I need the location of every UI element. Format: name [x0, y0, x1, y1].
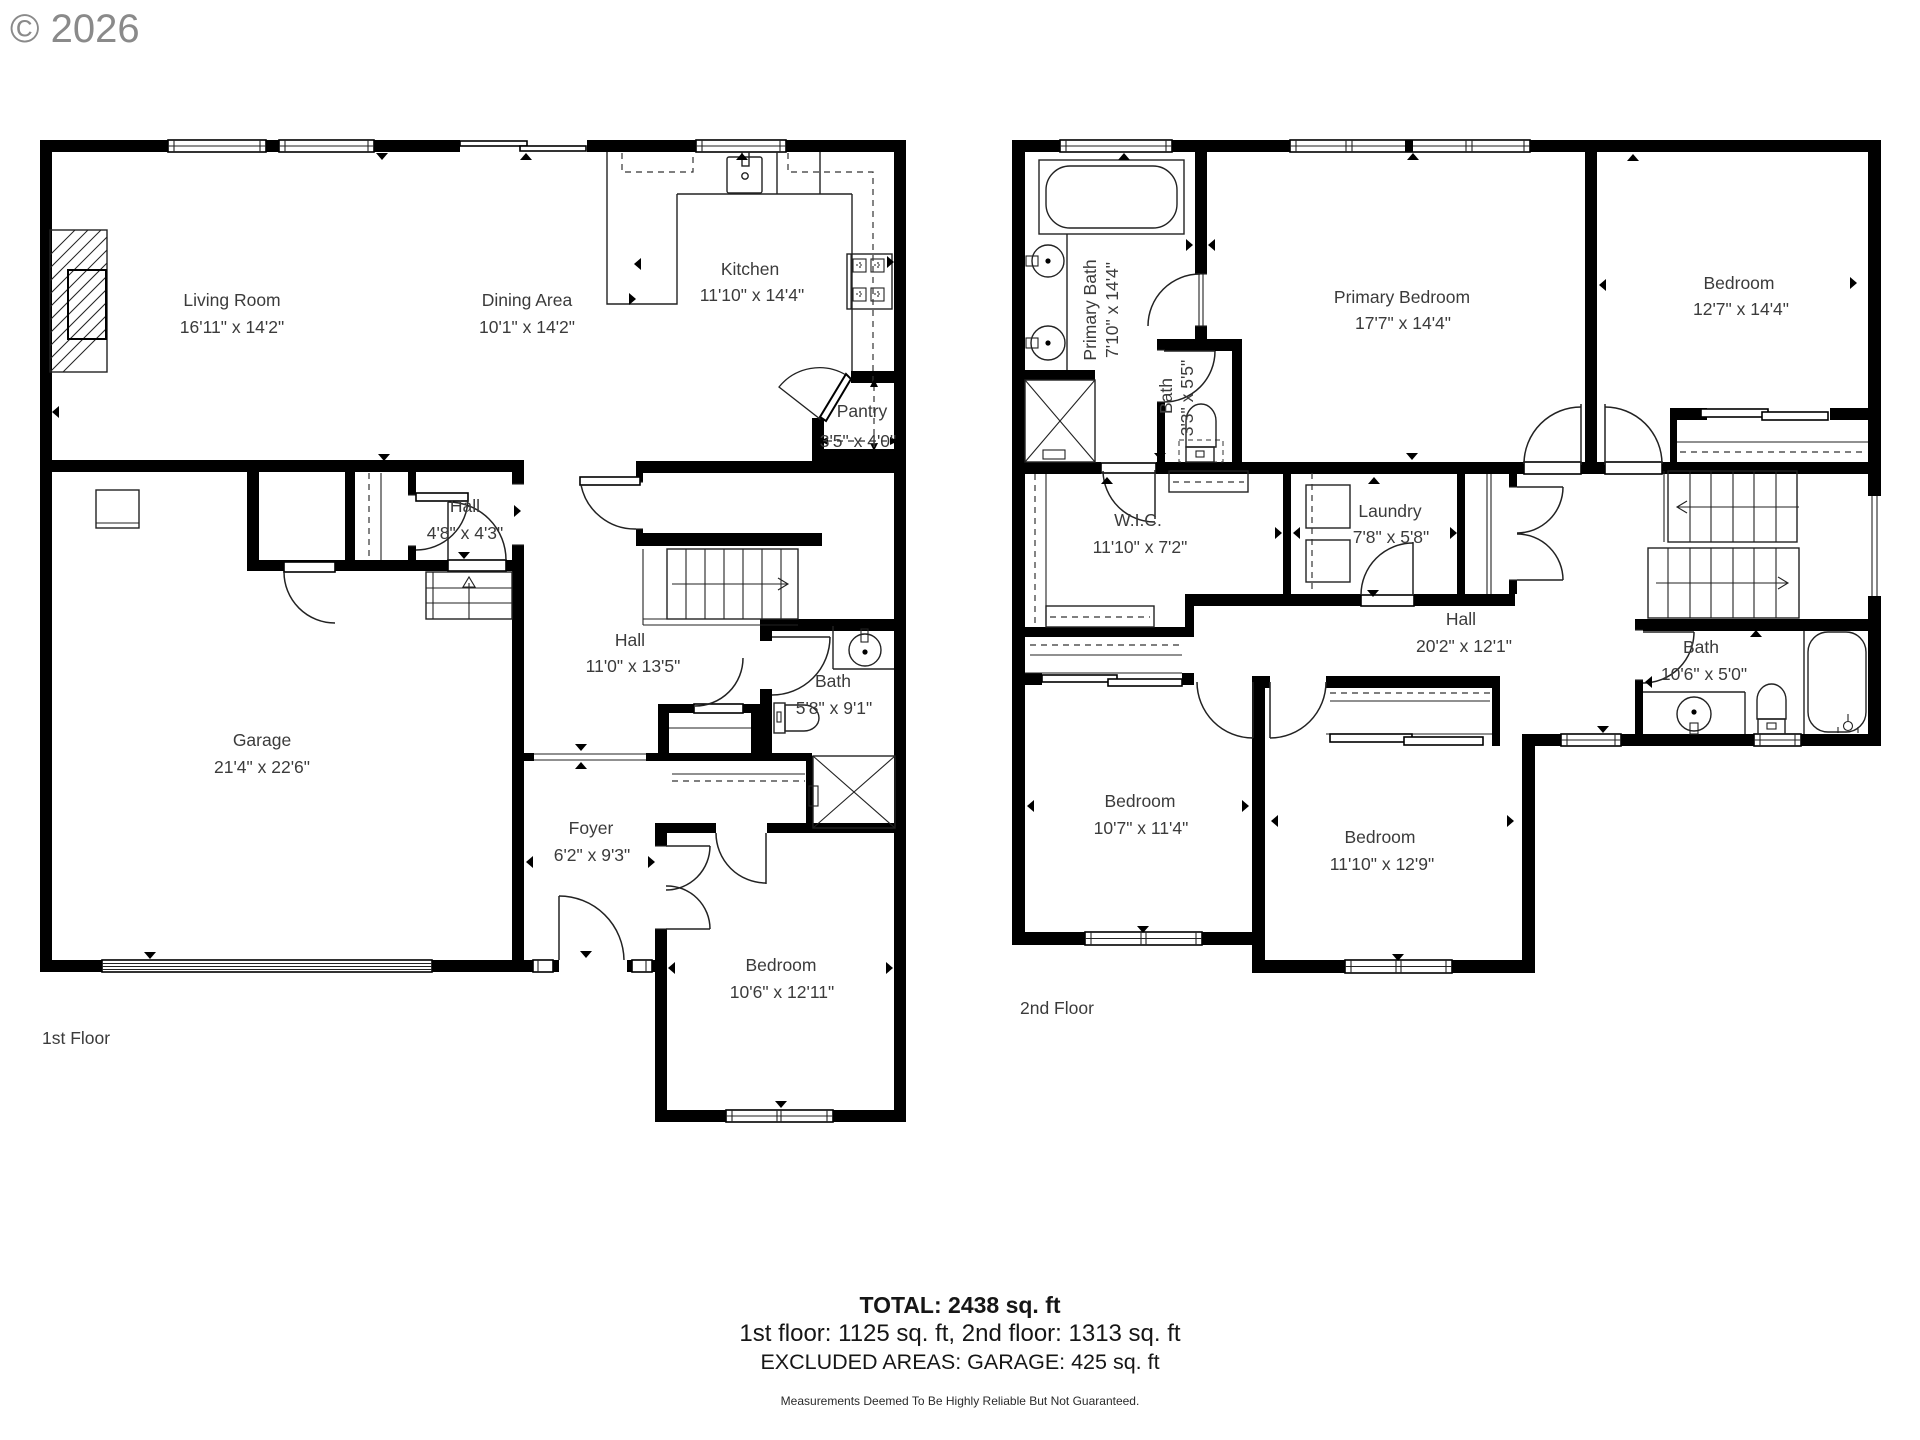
svg-text:Dining Area: Dining Area	[482, 290, 573, 310]
svg-text:16'11" x 14'2": 16'11" x 14'2"	[180, 317, 284, 337]
svg-text:Measurements Deemed To Be High: Measurements Deemed To Be Highly Reliabl…	[781, 1394, 1140, 1408]
svg-text:Bath: Bath	[1683, 637, 1719, 657]
svg-text:10'1" x 14'2": 10'1" x 14'2"	[479, 317, 575, 337]
svg-text:Pantry: Pantry	[837, 401, 888, 421]
svg-text:1st Floor: 1st Floor	[42, 1028, 110, 1048]
svg-text:Bath: Bath	[815, 671, 851, 691]
svg-text:11'10" x 12'9": 11'10" x 12'9"	[1330, 854, 1434, 874]
svg-text:3'3" x 5'5": 3'3" x 5'5"	[1177, 360, 1197, 437]
svg-text:7'10" x 14'4": 7'10" x 14'4"	[1102, 262, 1122, 358]
svg-text:Hall: Hall	[615, 630, 645, 650]
svg-text:Hall: Hall	[450, 496, 480, 516]
svg-text:20'2" x 12'1": 20'2" x 12'1"	[1416, 636, 1512, 656]
svg-text:Bath: Bath	[1156, 378, 1176, 414]
svg-text:3'5" x 4'0": 3'5" x 4'0"	[820, 431, 897, 451]
svg-text:10'6" x 5'0": 10'6" x 5'0"	[1661, 664, 1747, 684]
svg-text:Laundry: Laundry	[1358, 501, 1421, 521]
svg-text:21'4" x 22'6": 21'4" x 22'6"	[214, 757, 310, 777]
svg-text:10'6" x 12'11": 10'6" x 12'11"	[730, 982, 834, 1002]
svg-text:Bedroom: Bedroom	[1344, 827, 1415, 847]
svg-text:5'8" x 9'1": 5'8" x 9'1"	[796, 698, 873, 718]
svg-text:Bedroom: Bedroom	[1703, 273, 1774, 293]
svg-text:17'7" x 14'4": 17'7" x 14'4"	[1355, 313, 1451, 333]
svg-text:6'2" x 9'3": 6'2" x 9'3"	[554, 845, 631, 865]
svg-text:TOTAL: 2438 sq. ft: TOTAL: 2438 sq. ft	[859, 1292, 1060, 1318]
svg-text:Primary Bedroom: Primary Bedroom	[1334, 287, 1470, 307]
svg-text:Bedroom: Bedroom	[1104, 791, 1175, 811]
svg-text:11'10" x 7'2": 11'10" x 7'2"	[1093, 537, 1188, 557]
svg-text:12'7" x 14'4": 12'7" x 14'4"	[1693, 299, 1789, 319]
svg-text:Kitchen: Kitchen	[721, 259, 779, 279]
svg-text:11'0" x 13'5": 11'0" x 13'5"	[586, 656, 681, 676]
svg-text:W.I.C.: W.I.C.	[1114, 510, 1162, 530]
svg-text:1st floor: 1125 sq. ft, 2nd fl: 1st floor: 1125 sq. ft, 2nd floor: 1313 …	[739, 1320, 1180, 1347]
svg-text:10'7" x 11'4": 10'7" x 11'4"	[1094, 818, 1189, 838]
svg-text:2nd Floor: 2nd Floor	[1020, 998, 1094, 1018]
svg-text:© 2026: © 2026	[10, 7, 140, 51]
svg-text:7'8" x 5'8": 7'8" x 5'8"	[1353, 527, 1430, 547]
svg-text:4'8" x 4'3": 4'8" x 4'3"	[427, 523, 504, 543]
svg-text:Foyer: Foyer	[569, 818, 614, 838]
svg-text:Garage: Garage	[233, 730, 291, 750]
svg-text:Primary Bath: Primary Bath	[1080, 259, 1100, 360]
svg-text:EXCLUDED AREAS: GARAGE: 425 sq: EXCLUDED AREAS: GARAGE: 425 sq. ft	[760, 1350, 1159, 1374]
svg-text:Bedroom: Bedroom	[745, 955, 816, 975]
svg-text:11'10" x 14'4": 11'10" x 14'4"	[700, 285, 804, 305]
svg-text:Hall: Hall	[1446, 609, 1476, 629]
svg-text:Living Room: Living Room	[183, 290, 280, 310]
